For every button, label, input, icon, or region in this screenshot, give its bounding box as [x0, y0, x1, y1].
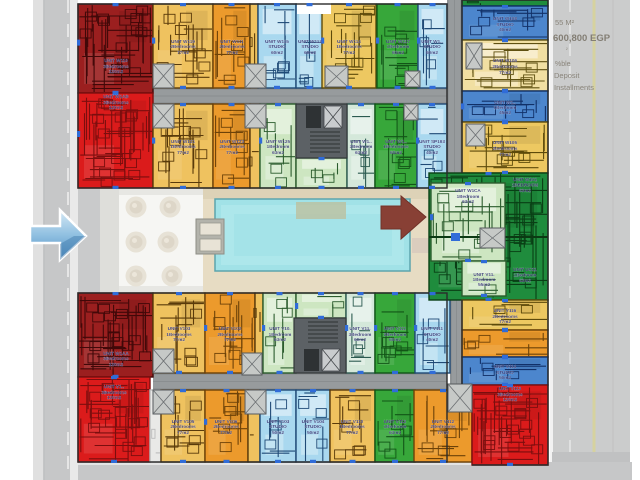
svg-text:1Bedrooms: 1Bedrooms [336, 44, 362, 49]
svg-text:77m2: 77m2 [177, 430, 189, 435]
svg-text:60m2: 60m2 [426, 50, 438, 55]
svg-text:UNIT V11.: UNIT V11. [349, 326, 370, 331]
svg-text:60m2: 60m2 [390, 150, 402, 155]
svg-text:60m2: 60m2 [392, 50, 404, 55]
svg-text:77m2: 77m2 [346, 430, 358, 435]
svg-text:UNIT UC11: UNIT UC11 [513, 267, 537, 272]
svg-text:50m2: 50m2 [499, 375, 511, 380]
svg-text:3Bedroom: 3Bedroom [350, 144, 373, 149]
svg-text:63m2: 63m2 [274, 337, 286, 342]
svg-text:UNIT V114: UNIT V114 [494, 364, 517, 369]
svg-text:UNIT V111: UNIT V111 [384, 326, 407, 331]
svg-text:1Bedrooms: 1Bedrooms [170, 144, 196, 149]
svg-text:2Bedrooms: 2Bedrooms [213, 424, 239, 429]
svg-text:1BEDROOM: 1BEDROOM [512, 183, 539, 188]
svg-text:77m2: 77m2 [173, 337, 185, 342]
svg-text:600,800 EGP: 600,800 EGP [553, 33, 611, 44]
svg-text:40m2: 40m2 [426, 150, 438, 155]
svg-text:77m2: 77m2 [224, 337, 236, 342]
svg-text:UNIT W106: UNIT W106 [493, 58, 517, 63]
svg-text:60m2: 60m2 [271, 50, 283, 55]
svg-text:STUDIO: STUDIO [269, 424, 287, 429]
svg-text:77m2: 77m2 [220, 430, 232, 435]
svg-text:3Bedrooms: 3Bedrooms [103, 356, 129, 361]
svg-text:UNIT W1CA: UNIT W1CA [455, 188, 481, 193]
svg-text:UNIT W1AB: UNIT W1AB [103, 94, 129, 99]
svg-text:45m2: 45m2 [499, 110, 511, 115]
svg-text:63m2: 63m2 [462, 199, 474, 204]
svg-text:STUDIO: STUDIO [423, 144, 441, 149]
svg-text:1Bedrooms: 1Bedrooms [339, 424, 365, 429]
svg-text:UNIT W110: UNIT W110 [104, 58, 128, 63]
svg-text:60m2: 60m2 [304, 50, 316, 55]
svg-text:UNIT V116: UNIT V116 [494, 308, 517, 313]
svg-text:77m2: 77m2 [226, 50, 238, 55]
svg-text:2Bedrooms: 2Bedrooms [170, 44, 196, 49]
svg-text:2Bedrooms: 2Bedrooms [430, 424, 456, 429]
svg-text:120m2: 120m2 [109, 362, 124, 367]
svg-text:2bedrooms: 2bedrooms [493, 146, 518, 151]
svg-text:77m2: 77m2 [499, 319, 511, 324]
svg-text:40m2: 40m2 [426, 337, 438, 342]
svg-text:63m2: 63m2 [519, 278, 531, 283]
svg-text:2Bedrooms: 2Bedrooms [219, 44, 245, 49]
svg-text:1Bedroom: 1Bedroom [387, 44, 410, 49]
svg-text:STUDIO: STUDIO [268, 44, 286, 49]
svg-text:120m2: 120m2 [503, 397, 518, 402]
svg-text:50m2: 50m2 [272, 430, 284, 435]
svg-text:55 M²: 55 M² [555, 18, 575, 27]
svg-text:120m2: 120m2 [107, 395, 122, 400]
svg-text:STUDIO: STUDIO [301, 44, 319, 49]
svg-text:120m2: 120m2 [109, 69, 124, 74]
svg-text:63m2: 63m2 [389, 430, 401, 435]
svg-text:%ble: %ble [555, 61, 571, 68]
svg-text:UNIT V103: UNIT V103 [168, 326, 191, 331]
svg-text:UNIT V111: UNIT V111 [421, 326, 444, 331]
svg-text:60m2: 60m2 [354, 337, 366, 342]
svg-text:120m2: 120m2 [109, 105, 124, 110]
svg-text:77m2: 77m2 [226, 150, 238, 155]
svg-text:UNIT V102: UNIT V102 [219, 326, 242, 331]
svg-text:77m2: 77m2 [343, 50, 355, 55]
svg-text:2Bedrooms: 2Bedrooms [219, 144, 245, 149]
svg-text:50m2: 50m2 [307, 430, 319, 435]
svg-text:77m2: 77m2 [499, 152, 511, 157]
svg-text:1Bedrooms: 1Bedrooms [383, 144, 409, 149]
svg-text:63m2: 63m2 [272, 150, 284, 155]
svg-text:40m2: 40m2 [499, 27, 511, 32]
svg-text:77m2: 77m2 [177, 150, 189, 155]
svg-text:UNIT V113: UNIT V113 [499, 386, 522, 391]
svg-text:UNIT V10.: UNIT V10. [269, 326, 290, 331]
svg-text:Deposit: Deposit [554, 71, 580, 80]
svg-text:UNIT V1..: UNIT V1.. [104, 384, 124, 389]
svg-text:77m2: 77m2 [177, 50, 189, 55]
svg-text:1Bedroom: 1Bedroom [384, 424, 407, 429]
svg-text:63m2: 63m2 [519, 188, 531, 193]
svg-text:1Bedroom: 1Bedroom [514, 273, 537, 278]
svg-text:77m2: 77m2 [437, 430, 449, 435]
svg-text:2Bedrooms: 2Bedrooms [492, 64, 518, 69]
svg-text:77m2: 77m2 [499, 70, 511, 75]
svg-text:63m2: 63m2 [355, 150, 367, 155]
svg-text:55m2: 55m2 [478, 282, 490, 287]
svg-text:UNIT W108: UNIT W108 [493, 16, 517, 21]
svg-text:STUDIO: STUDIO [304, 424, 322, 429]
svg-text:STUDIO: STUDIO [423, 44, 441, 49]
svg-text:1Bedroom: 1Bedroom [267, 144, 290, 149]
svg-text:Installments: Installments [554, 83, 594, 92]
svg-text:UNIT W101: UNIT W101 [513, 177, 537, 182]
svg-text:UNIT W105: UNIT W105 [493, 140, 517, 145]
svg-text:60m2: 60m2 [389, 337, 401, 342]
svg-text:2Bedrooms: 2Bedrooms [170, 424, 196, 429]
